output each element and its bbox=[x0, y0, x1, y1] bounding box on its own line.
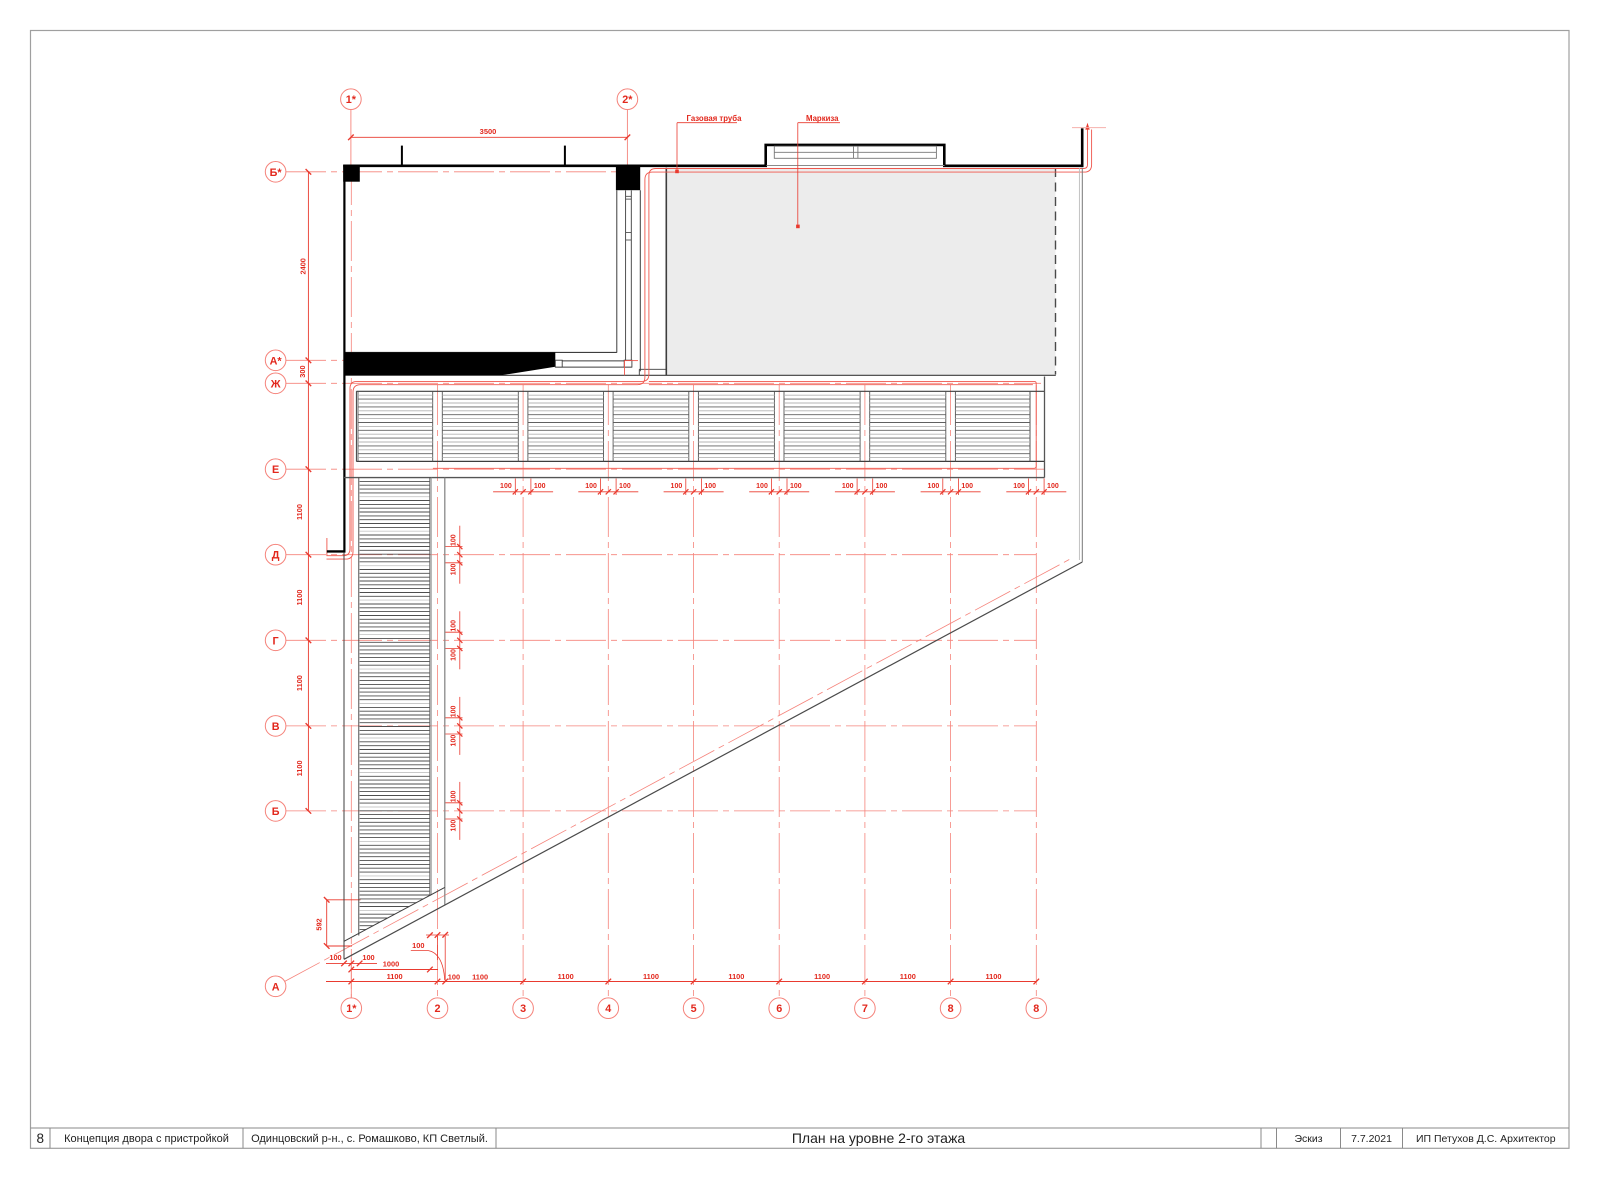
svg-text:Одинцовский р-н., с. Ромашково: Одинцовский р-н., с. Ромашково, КП Светл… bbox=[251, 1133, 488, 1145]
svg-text:Д: Д bbox=[272, 550, 280, 562]
svg-text:Ж: Ж bbox=[270, 378, 281, 390]
svg-text:Г: Г bbox=[273, 635, 279, 647]
svg-text:1100: 1100 bbox=[472, 973, 488, 982]
svg-text:Эскиз: Эскиз bbox=[1294, 1133, 1322, 1145]
svg-text:ИП Петухов Д.С. Архитектор: ИП Петухов Д.С. Архитектор bbox=[1416, 1133, 1556, 1145]
svg-text:100: 100 bbox=[451, 820, 458, 832]
svg-text:1000: 1000 bbox=[383, 959, 399, 968]
svg-text:Е: Е bbox=[272, 464, 279, 476]
svg-text:100: 100 bbox=[362, 953, 374, 962]
svg-text:1*: 1* bbox=[346, 1003, 357, 1015]
svg-text:1100: 1100 bbox=[295, 504, 304, 520]
svg-text:100: 100 bbox=[756, 483, 768, 490]
svg-text:7.7.2021: 7.7.2021 bbox=[1351, 1133, 1392, 1145]
svg-text:1100: 1100 bbox=[558, 972, 574, 981]
svg-text:100: 100 bbox=[451, 563, 458, 575]
svg-text:1100: 1100 bbox=[387, 972, 403, 981]
svg-text:Б*: Б* bbox=[270, 167, 283, 179]
svg-text:1100: 1100 bbox=[643, 972, 659, 981]
svg-text:100: 100 bbox=[928, 483, 940, 490]
svg-text:Б: Б bbox=[272, 806, 280, 818]
svg-text:Концепция двора с пристройкой: Концепция двора с пристройкой bbox=[64, 1133, 229, 1145]
svg-text:1100: 1100 bbox=[295, 675, 304, 691]
svg-text:100: 100 bbox=[704, 483, 716, 490]
svg-text:1100: 1100 bbox=[728, 972, 744, 981]
svg-text:Маркиза: Маркиза bbox=[806, 114, 839, 123]
svg-text:100: 100 bbox=[585, 483, 597, 490]
svg-text:План на уровне 2-го этажа: План на уровне 2-го этажа bbox=[792, 1130, 965, 1146]
svg-text:100: 100 bbox=[448, 972, 460, 981]
svg-text:300: 300 bbox=[298, 365, 307, 377]
svg-text:А: А bbox=[272, 981, 280, 993]
svg-text:3500: 3500 bbox=[480, 127, 497, 136]
svg-text:100: 100 bbox=[534, 483, 546, 490]
svg-text:8: 8 bbox=[948, 1003, 954, 1015]
svg-text:2*: 2* bbox=[622, 94, 633, 106]
svg-text:100: 100 bbox=[671, 483, 683, 490]
svg-text:100: 100 bbox=[790, 483, 802, 490]
svg-text:100: 100 bbox=[451, 534, 458, 546]
svg-text:1100: 1100 bbox=[814, 972, 830, 981]
svg-text:4: 4 bbox=[605, 1003, 611, 1015]
svg-text:5: 5 bbox=[691, 1003, 697, 1015]
svg-text:100: 100 bbox=[1047, 483, 1059, 490]
svg-text:6: 6 bbox=[776, 1003, 782, 1015]
svg-text:100: 100 bbox=[876, 483, 888, 490]
svg-text:8: 8 bbox=[36, 1131, 44, 1146]
svg-text:1100: 1100 bbox=[985, 972, 1001, 981]
svg-text:100: 100 bbox=[1013, 483, 1025, 490]
svg-text:3: 3 bbox=[520, 1003, 526, 1015]
svg-text:А*: А* bbox=[270, 355, 283, 367]
svg-text:100: 100 bbox=[961, 483, 973, 490]
svg-text:592: 592 bbox=[314, 918, 323, 930]
svg-text:7: 7 bbox=[862, 1003, 868, 1015]
svg-text:100: 100 bbox=[619, 483, 631, 490]
svg-text:1100: 1100 bbox=[295, 760, 304, 776]
svg-text:2400: 2400 bbox=[299, 258, 308, 274]
svg-text:Газовая труба: Газовая труба bbox=[687, 114, 743, 123]
svg-text:1100: 1100 bbox=[900, 972, 916, 981]
svg-text:100: 100 bbox=[329, 953, 341, 962]
svg-text:100: 100 bbox=[412, 941, 424, 950]
svg-text:1100: 1100 bbox=[295, 589, 304, 605]
svg-text:100: 100 bbox=[451, 649, 458, 661]
svg-text:100: 100 bbox=[451, 620, 458, 632]
svg-text:2: 2 bbox=[434, 1003, 440, 1015]
svg-text:1*: 1* bbox=[346, 94, 357, 106]
svg-text:100: 100 bbox=[451, 705, 458, 717]
svg-text:8: 8 bbox=[1033, 1003, 1039, 1015]
svg-text:100: 100 bbox=[451, 790, 458, 802]
svg-text:100: 100 bbox=[451, 735, 458, 747]
svg-text:В: В bbox=[272, 721, 280, 733]
svg-text:100: 100 bbox=[842, 483, 854, 490]
svg-text:100: 100 bbox=[500, 483, 512, 490]
